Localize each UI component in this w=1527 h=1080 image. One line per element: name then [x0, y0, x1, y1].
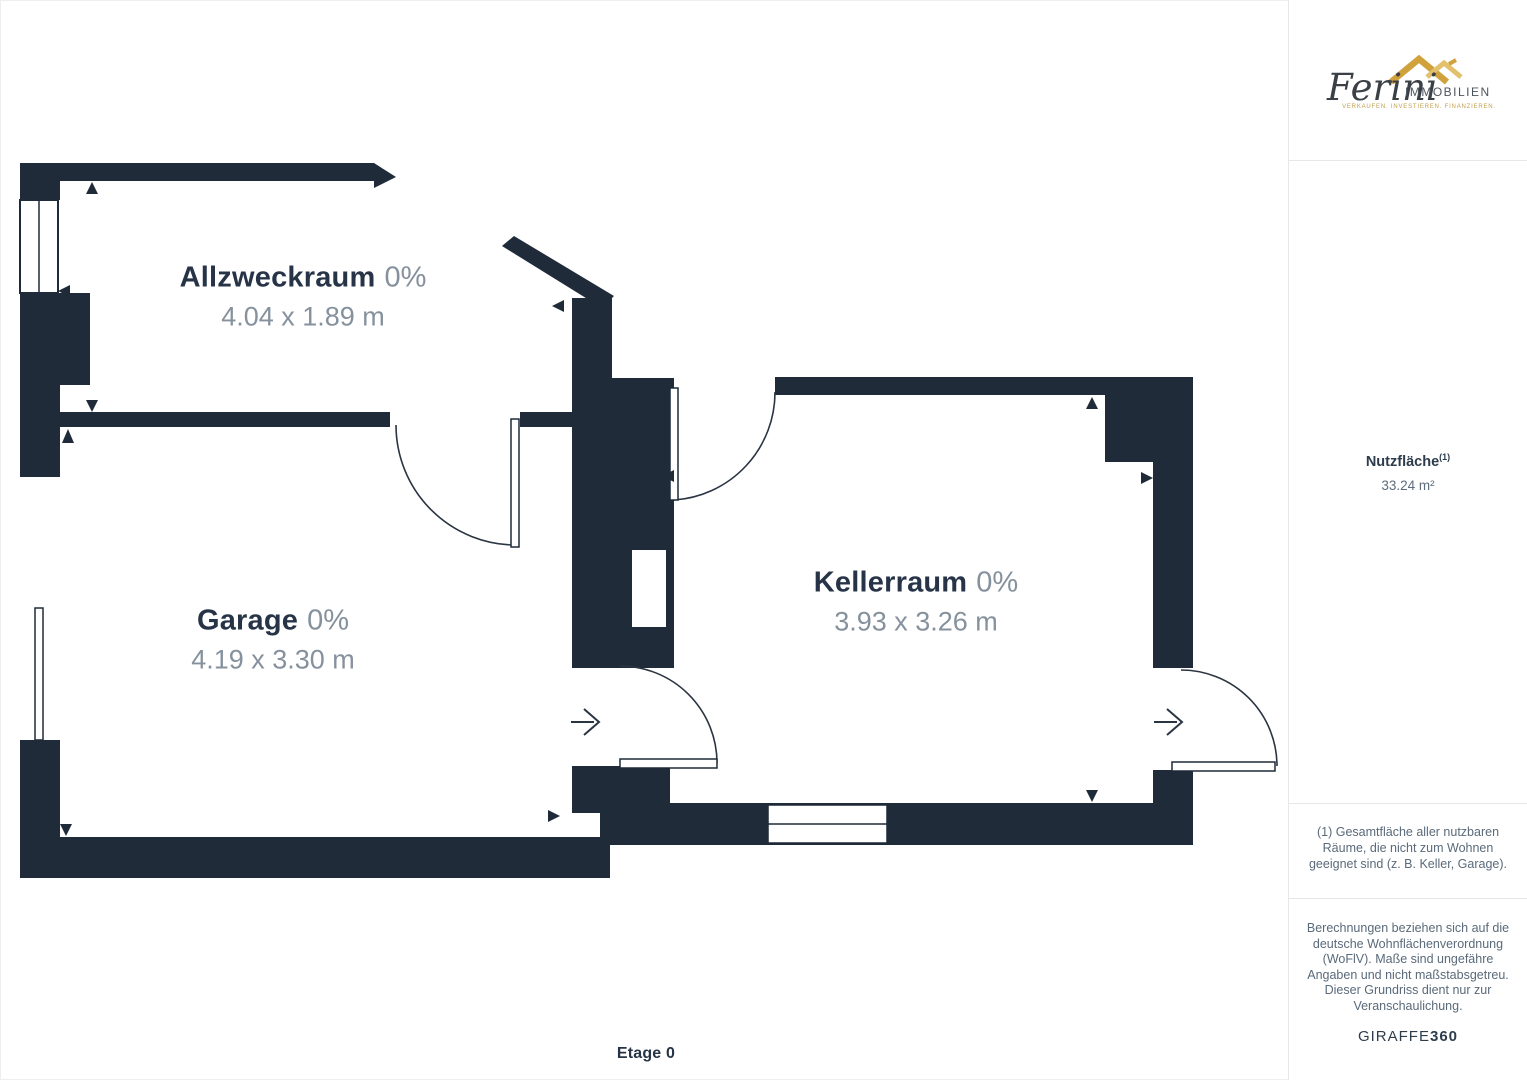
giraffe-text: GIRAFFE	[1358, 1028, 1430, 1045]
room-name: Kellerraum	[814, 567, 968, 599]
sidebar-divider	[1289, 898, 1527, 899]
area-summary: Nutzfläche(1) 33.24 m²	[1289, 452, 1527, 493]
room-label-garage: Garage0% 4.19 x 3.30 m	[191, 605, 355, 676]
room-dimensions: 4.04 x 1.89 m	[180, 302, 427, 333]
area-label: Nutzfläche(1)	[1289, 452, 1527, 470]
giraffe-360-text: 360	[1430, 1028, 1458, 1045]
wall-left-mid	[20, 293, 60, 477]
door-garage-exit	[620, 666, 717, 768]
floorplan-svg	[0, 0, 1288, 1080]
window	[20, 200, 58, 293]
wall-divider	[60, 412, 390, 427]
sidebar: Ferini IMMOBILIEN VERKAUFEN. INVESTIEREN…	[1288, 0, 1527, 1080]
wall-left-upper	[20, 163, 60, 200]
wall-garage-bottom	[20, 837, 610, 878]
area-footnote-marker: (1)	[1439, 452, 1450, 462]
footnote-text: (1) Gesamtfläche aller nutzbaren Räume, …	[1303, 824, 1513, 872]
door-kellerraum-inner	[670, 388, 775, 500]
wall-left-inner-block	[60, 293, 90, 385]
wall-top-tip	[374, 163, 396, 188]
wall-diagonal	[502, 236, 614, 308]
wall-top	[20, 163, 374, 181]
area-label-text: Nutzfläche	[1366, 454, 1439, 470]
room-label-allzweckraum: Allzweckraum0% 4.04 x 1.89 m	[180, 262, 427, 333]
entry-arrow-kellerraum	[1154, 709, 1182, 735]
disclaimer-text: Berechnungen beziehen sich auf die deuts…	[1306, 921, 1510, 1014]
wall-garage-left-lower	[20, 740, 60, 837]
room-percent: 0%	[307, 605, 349, 637]
company-logo: Ferini IMMOBILIEN VERKAUFEN. INVESTIEREN…	[1289, 0, 1527, 160]
garage-gate-leaf	[35, 608, 43, 740]
logo-caps-text: IMMOBILIEN	[1405, 85, 1491, 99]
floor-label: Etage 0	[617, 1045, 675, 1063]
sidebar-divider	[1289, 803, 1527, 804]
wall-keller-top	[775, 377, 1193, 395]
entry-arrow-garage	[571, 709, 599, 735]
logo-tagline: VERKAUFEN. INVESTIEREN. FINANZIEREN.	[1342, 104, 1496, 110]
door-kellerraum-exit	[1172, 670, 1277, 771]
room-name: Garage	[197, 605, 298, 637]
room-dimensions: 4.19 x 3.30 m	[191, 645, 355, 676]
room-dimensions: 3.93 x 3.26 m	[814, 607, 1018, 638]
area-value: 33.24 m²	[1289, 478, 1527, 493]
wall-keller-bottom	[600, 803, 1193, 845]
wall-keller-right	[1153, 462, 1193, 668]
sidebar-divider	[1289, 160, 1527, 161]
door-allzweckraum	[396, 419, 519, 547]
wall-keller-topright-block	[1105, 395, 1193, 462]
giraffe360-brand: GIRAFFE360	[1289, 1028, 1527, 1045]
stairs	[768, 805, 887, 843]
wall-niche	[632, 550, 666, 627]
wall-divider-stub	[520, 412, 572, 427]
room-percent: 0%	[384, 262, 426, 294]
room-percent: 0%	[976, 567, 1018, 599]
room-label-kellerraum: Kellerraum0% 3.93 x 3.26 m	[814, 567, 1018, 638]
room-name: Allzweckraum	[180, 262, 376, 294]
